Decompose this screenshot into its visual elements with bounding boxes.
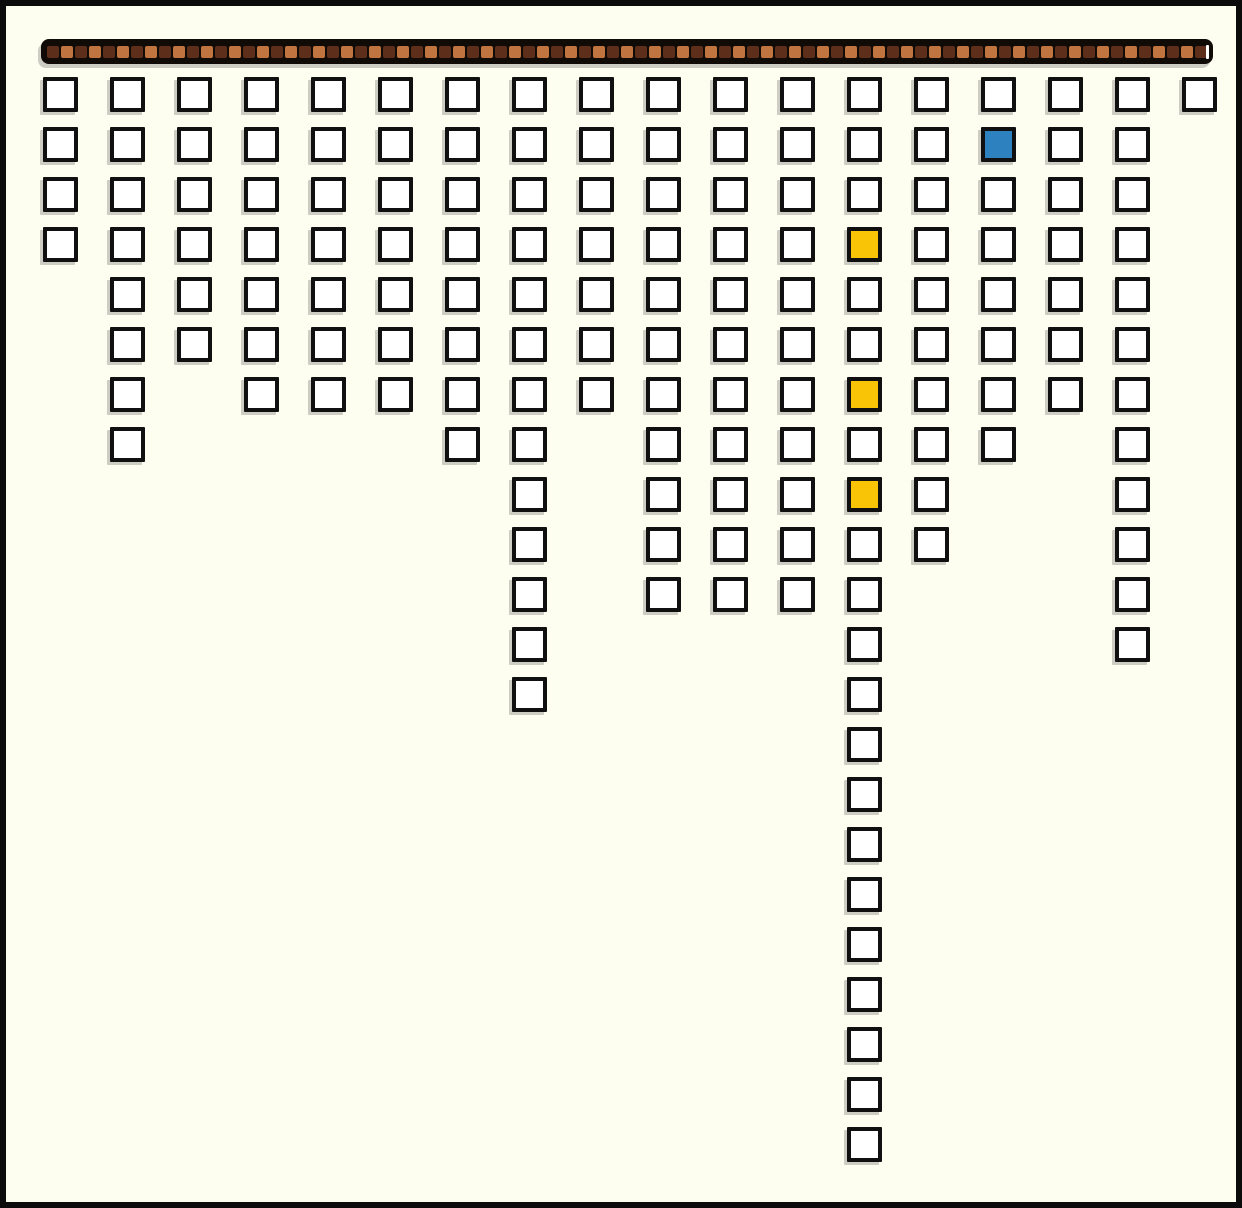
bar-segment <box>803 46 815 58</box>
grid-cell[interactable] <box>646 77 681 112</box>
grid-cell[interactable] <box>110 127 145 162</box>
bar-segment <box>1167 46 1179 58</box>
grid-cell[interactable] <box>847 177 882 212</box>
grid-cell[interactable] <box>713 227 748 262</box>
bar-segment <box>509 46 521 58</box>
grid-cell[interactable] <box>110 277 145 312</box>
bar-segment <box>985 46 997 58</box>
grid-cell[interactable] <box>1182 77 1217 112</box>
grid-cell[interactable] <box>1115 427 1150 462</box>
grid-cell[interactable] <box>780 477 815 512</box>
bar-segment <box>425 46 437 58</box>
grid-cell[interactable] <box>847 977 882 1012</box>
grid-cell[interactable] <box>646 277 681 312</box>
grid-cell[interactable] <box>646 177 681 212</box>
grid-cell[interactable] <box>512 77 547 112</box>
grid-cell[interactable] <box>914 227 949 262</box>
grid-cell[interactable] <box>579 327 614 362</box>
bar-segment <box>173 46 185 58</box>
grid-cell[interactable] <box>847 327 882 362</box>
grid-cell[interactable] <box>1115 227 1150 262</box>
bar-segment <box>523 46 535 58</box>
grid-cell[interactable] <box>646 327 681 362</box>
grid-cell[interactable] <box>311 377 346 412</box>
grid-cell[interactable] <box>713 527 748 562</box>
grid-cell[interactable] <box>847 527 882 562</box>
bar-segment <box>1097 46 1109 58</box>
grid-cell[interactable] <box>512 377 547 412</box>
grid-cell[interactable] <box>981 327 1016 362</box>
grid-cell[interactable] <box>512 177 547 212</box>
grid-cell[interactable] <box>579 377 614 412</box>
grid-cell[interactable] <box>713 477 748 512</box>
grid-cell[interactable] <box>110 427 145 462</box>
grid-cell[interactable] <box>713 127 748 162</box>
grid-cell[interactable] <box>646 577 681 612</box>
grid-cell[interactable] <box>1048 277 1083 312</box>
bar-segment <box>1111 46 1123 58</box>
grid-cell[interactable] <box>512 277 547 312</box>
bar-segment <box>915 46 927 58</box>
grid-cell[interactable] <box>847 827 882 862</box>
grid-cell[interactable] <box>311 77 346 112</box>
bar-segment <box>187 46 199 58</box>
bar-segment <box>89 46 101 58</box>
grid-cell[interactable] <box>914 127 949 162</box>
grid-cell[interactable] <box>646 377 681 412</box>
grid-cell[interactable] <box>981 227 1016 262</box>
bar-segment <box>481 46 493 58</box>
grid-cell[interactable] <box>981 77 1016 112</box>
grid-cell[interactable] <box>914 527 949 562</box>
bar-segment <box>1027 46 1039 58</box>
bar-segment <box>649 46 661 58</box>
bar-segment <box>411 46 423 58</box>
grid-cell[interactable] <box>445 427 480 462</box>
bar-segment <box>845 46 857 58</box>
yellow-cell[interactable] <box>847 477 882 512</box>
grid-cell[interactable] <box>177 177 212 212</box>
grid-cell[interactable] <box>311 277 346 312</box>
grid-cell[interactable] <box>43 77 78 112</box>
grid-cell[interactable] <box>713 327 748 362</box>
grid-cell[interactable] <box>110 377 145 412</box>
bar-segment <box>579 46 591 58</box>
bar-segment <box>47 46 59 58</box>
grid-cell[interactable] <box>512 127 547 162</box>
grid-cell[interactable] <box>512 327 547 362</box>
bar-segment <box>1181 46 1193 58</box>
bar-segment <box>383 46 395 58</box>
grid-cell[interactable] <box>579 127 614 162</box>
bar-segment <box>229 46 241 58</box>
grid-cell[interactable] <box>579 227 614 262</box>
bar-segment <box>313 46 325 58</box>
grid-cell[interactable] <box>445 177 480 212</box>
bar-segment <box>285 46 297 58</box>
grid-cell[interactable] <box>914 77 949 112</box>
grid-cell[interactable] <box>110 177 145 212</box>
grid-cell[interactable] <box>244 177 279 212</box>
bar-segment <box>1055 46 1067 58</box>
grid-cell[interactable] <box>512 227 547 262</box>
bar-segment <box>467 46 479 58</box>
grid-cell[interactable] <box>847 127 882 162</box>
bar-segment <box>75 46 87 58</box>
grid-cell[interactable] <box>1048 77 1083 112</box>
bar-segment <box>747 46 759 58</box>
bar-segment <box>355 46 367 58</box>
bar-segment <box>117 46 129 58</box>
bar-segment <box>733 46 745 58</box>
grid-cell[interactable] <box>378 377 413 412</box>
grid-cell[interactable] <box>1115 577 1150 612</box>
grid-cell[interactable] <box>378 177 413 212</box>
grid-cell[interactable] <box>43 177 78 212</box>
bar-segment <box>439 46 451 58</box>
grid-cell[interactable] <box>847 627 882 662</box>
grid-cell[interactable] <box>847 577 882 612</box>
grid-cell[interactable] <box>311 227 346 262</box>
grid-cell[interactable] <box>177 127 212 162</box>
grid-cell[interactable] <box>445 377 480 412</box>
bar-segment <box>705 46 717 58</box>
bar-segment <box>61 46 73 58</box>
grid-cell[interactable] <box>579 277 614 312</box>
grid-cell[interactable] <box>646 527 681 562</box>
grid-cell[interactable] <box>244 277 279 312</box>
bar-segment <box>215 46 227 58</box>
game-board <box>0 0 1242 1208</box>
grid-cell[interactable] <box>177 77 212 112</box>
bar-segment <box>257 46 269 58</box>
bar-segment <box>1153 46 1165 58</box>
bar-segment <box>341 46 353 58</box>
grid-cell[interactable] <box>110 327 145 362</box>
bar-segment <box>761 46 773 58</box>
bar-segment <box>1041 46 1053 58</box>
grid-cell[interactable] <box>244 327 279 362</box>
grid-cell[interactable] <box>311 327 346 362</box>
grid-cell[interactable] <box>1115 627 1150 662</box>
bar-segment <box>103 46 115 58</box>
grid-cell[interactable] <box>1115 377 1150 412</box>
bar-end-notch <box>1206 45 1209 59</box>
grid-cell[interactable] <box>579 177 614 212</box>
bar-segment <box>873 46 885 58</box>
grid-cell[interactable] <box>378 127 413 162</box>
grid-cell[interactable] <box>780 527 815 562</box>
bar-segment <box>831 46 843 58</box>
grid-cell[interactable] <box>1048 327 1083 362</box>
grid-cell[interactable] <box>713 277 748 312</box>
grid-cell[interactable] <box>646 477 681 512</box>
grid-cell[interactable] <box>1048 127 1083 162</box>
bar-segment <box>789 46 801 58</box>
grid-cell[interactable] <box>1048 377 1083 412</box>
grid-cell[interactable] <box>847 877 882 912</box>
grid-cell[interactable] <box>445 77 480 112</box>
bar-segment <box>397 46 409 58</box>
grid-cell[interactable] <box>713 427 748 462</box>
yellow-cell[interactable] <box>847 227 882 262</box>
grid-cell[interactable] <box>512 477 547 512</box>
grid-cell[interactable] <box>1115 277 1150 312</box>
grid-cell[interactable] <box>1115 477 1150 512</box>
grid-cell[interactable] <box>914 327 949 362</box>
grid-cell[interactable] <box>110 77 145 112</box>
grid-cell[interactable] <box>43 227 78 262</box>
grid-cell[interactable] <box>981 377 1016 412</box>
grid-cell[interactable] <box>378 227 413 262</box>
grid-cell[interactable] <box>847 1127 882 1162</box>
bar-segment <box>607 46 619 58</box>
grid-cell[interactable] <box>43 127 78 162</box>
grid-cell[interactable] <box>847 1077 882 1112</box>
grid-cell[interactable] <box>445 227 480 262</box>
grid-cell[interactable] <box>445 277 480 312</box>
bar-segment <box>887 46 899 58</box>
grid-cell[interactable] <box>579 77 614 112</box>
grid-cell[interactable] <box>914 427 949 462</box>
bar-segment <box>621 46 633 58</box>
grid-cell[interactable] <box>445 127 480 162</box>
grid-cell[interactable] <box>847 677 882 712</box>
grid-cell[interactable] <box>1115 77 1150 112</box>
grid-cell[interactable] <box>244 227 279 262</box>
grid-cell[interactable] <box>1048 227 1083 262</box>
grid-cell[interactable] <box>512 577 547 612</box>
grid-cell[interactable] <box>847 727 882 762</box>
grid-cell[interactable] <box>780 377 815 412</box>
grid-cell[interactable] <box>1115 127 1150 162</box>
bar-segment <box>243 46 255 58</box>
grid-cell[interactable] <box>780 227 815 262</box>
segmented-progress-bar <box>41 39 1213 64</box>
grid-cell[interactable] <box>780 127 815 162</box>
grid-cell[interactable] <box>847 927 882 962</box>
grid-cell[interactable] <box>177 277 212 312</box>
bar-segment <box>943 46 955 58</box>
grid-cell[interactable] <box>244 127 279 162</box>
grid-cell[interactable] <box>780 427 815 462</box>
bar-segment <box>327 46 339 58</box>
bar-segment <box>929 46 941 58</box>
grid-cell[interactable] <box>244 377 279 412</box>
grid-cell[interactable] <box>311 177 346 212</box>
bar-segment <box>537 46 549 58</box>
grid-cell[interactable] <box>512 677 547 712</box>
grid-cell[interactable] <box>847 77 882 112</box>
grid-cell[interactable] <box>512 427 547 462</box>
grid-cell[interactable] <box>244 77 279 112</box>
grid-cell[interactable] <box>914 477 949 512</box>
grid-cell[interactable] <box>847 1027 882 1062</box>
grid-cell[interactable] <box>512 627 547 662</box>
grid-cell[interactable] <box>378 277 413 312</box>
bar-segment <box>999 46 1011 58</box>
bar-segment <box>957 46 969 58</box>
grid-cell[interactable] <box>646 227 681 262</box>
grid-cell[interactable] <box>311 127 346 162</box>
grid-cell[interactable] <box>1115 327 1150 362</box>
grid-cell[interactable] <box>914 277 949 312</box>
grid-cell[interactable] <box>512 527 547 562</box>
bar-segment <box>551 46 563 58</box>
bar-segment <box>159 46 171 58</box>
grid-cell[interactable] <box>847 427 882 462</box>
bar-segment <box>691 46 703 58</box>
grid-cell[interactable] <box>646 427 681 462</box>
grid-cell[interactable] <box>981 177 1016 212</box>
bar-segment <box>593 46 605 58</box>
bar-segment <box>1069 46 1081 58</box>
bar-segment <box>719 46 731 58</box>
bar-segment <box>495 46 507 58</box>
grid-cell[interactable] <box>981 277 1016 312</box>
grid-cell[interactable] <box>177 227 212 262</box>
grid-cell[interactable] <box>780 577 815 612</box>
grid-cell[interactable] <box>445 327 480 362</box>
bar-segment <box>677 46 689 58</box>
grid-cell[interactable] <box>1115 177 1150 212</box>
bar-segment <box>1013 46 1025 58</box>
grid-cell[interactable] <box>981 427 1016 462</box>
grid-cell[interactable] <box>378 327 413 362</box>
bar-segment <box>775 46 787 58</box>
bar-segment <box>1139 46 1151 58</box>
bar-segment <box>1083 46 1095 58</box>
grid-cell[interactable] <box>780 327 815 362</box>
bar-segment <box>859 46 871 58</box>
bar-segment <box>201 46 213 58</box>
grid-cell[interactable] <box>1115 527 1150 562</box>
bar-segment <box>131 46 143 58</box>
bar-segment <box>1125 46 1137 58</box>
grid-cell[interactable] <box>177 327 212 362</box>
bar-segment <box>299 46 311 58</box>
grid-cell[interactable] <box>713 577 748 612</box>
yellow-cell[interactable] <box>847 377 882 412</box>
grid-cell[interactable] <box>1048 177 1083 212</box>
grid-cell[interactable] <box>646 127 681 162</box>
grid-cell[interactable] <box>713 177 748 212</box>
bar-segment <box>145 46 157 58</box>
bar-segment <box>663 46 675 58</box>
bar-segment <box>565 46 577 58</box>
grid-cell[interactable] <box>713 377 748 412</box>
bar-segment <box>635 46 647 58</box>
grid-cell[interactable] <box>713 77 748 112</box>
grid-cell[interactable] <box>847 277 882 312</box>
grid-cell[interactable] <box>914 377 949 412</box>
bar-segment <box>817 46 829 58</box>
bar-segment <box>369 46 381 58</box>
bar-segment <box>971 46 983 58</box>
grid-cell[interactable] <box>110 227 145 262</box>
bar-segment <box>901 46 913 58</box>
grid-cell[interactable] <box>780 177 815 212</box>
bar-segment <box>271 46 283 58</box>
blue-cell[interactable] <box>981 127 1016 162</box>
grid-cell[interactable] <box>378 77 413 112</box>
grid-cell[interactable] <box>914 177 949 212</box>
grid-cell[interactable] <box>847 777 882 812</box>
grid-cell[interactable] <box>780 277 815 312</box>
bar-segment <box>453 46 465 58</box>
grid-cell[interactable] <box>780 77 815 112</box>
